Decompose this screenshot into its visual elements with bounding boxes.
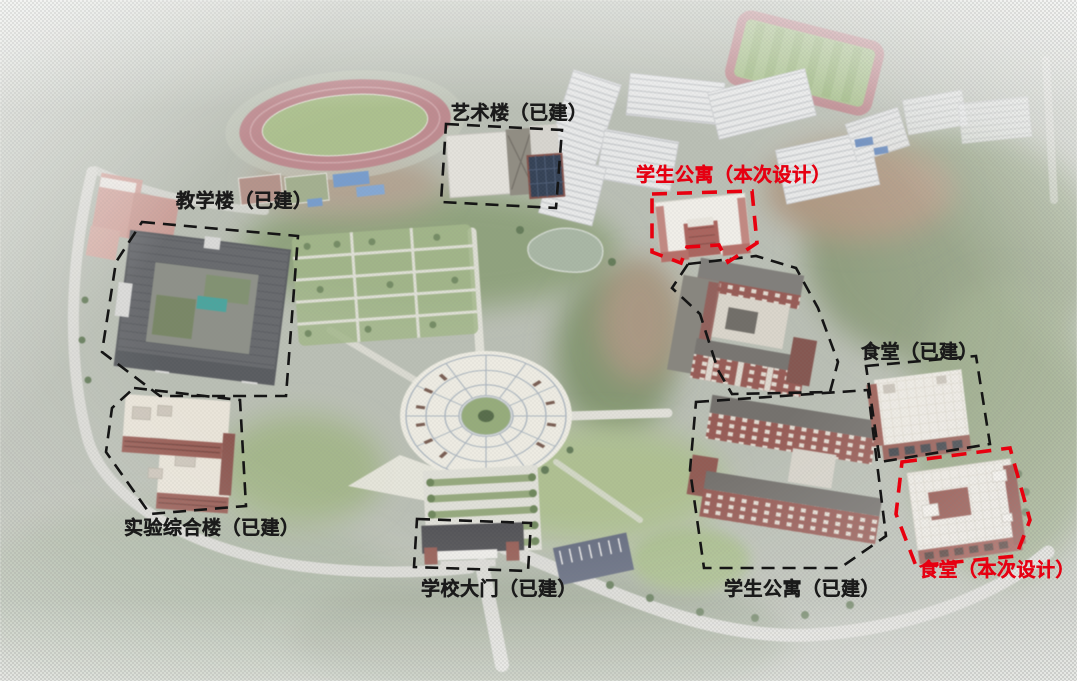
garden-plots: [291, 224, 478, 346]
label-canteen-built: 食堂（已建）: [861, 337, 978, 364]
label-canteen-new: 食堂（本次设计）: [919, 555, 1075, 582]
label-lab-building: 实验综合楼（已建）: [124, 513, 300, 540]
label-dorm-built: 学生公寓（已建）: [724, 574, 880, 601]
label-teaching-building: 教学楼（已建）: [176, 186, 313, 213]
label-art-building: 艺术楼（已建）: [451, 98, 588, 125]
dorm-new-render: [655, 193, 751, 262]
canteen-new-render: [907, 457, 1038, 565]
teaching-building: [108, 226, 290, 386]
art-building: [446, 124, 565, 204]
label-school-gate: 学校大门（已建）: [421, 574, 577, 601]
label-dorm-new: 学生公寓（本次设计）: [636, 160, 831, 187]
campus-aerial-site-plan: 教学楼（已建） 艺术楼（已建） 学生公寓（本次设计） 实验综合楼（已建） 学校大…: [0, 0, 1077, 681]
